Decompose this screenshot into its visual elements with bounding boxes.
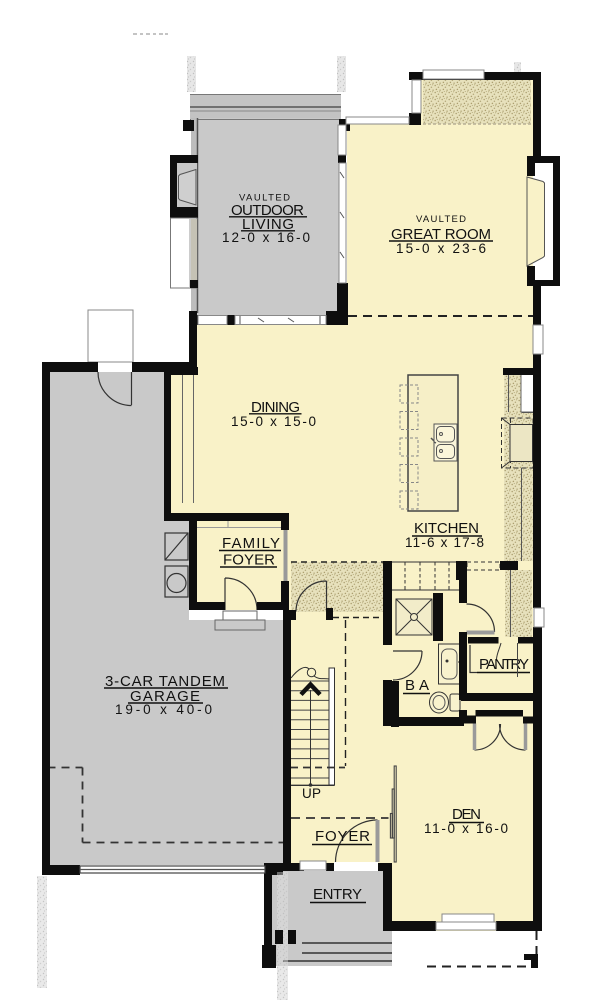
svg-text:FOYER: FOYER bbox=[315, 828, 370, 845]
svg-text:11-6 x 17-8: 11-6 x 17-8 bbox=[405, 535, 484, 550]
svg-text:15-0 x 15-0: 15-0 x 15-0 bbox=[231, 414, 316, 429]
svg-text:15-0 x 23-6: 15-0 x 23-6 bbox=[396, 241, 486, 256]
svg-text:12-0 x 16-0: 12-0 x 16-0 bbox=[222, 230, 310, 245]
svg-text:19-0 x 40-0: 19-0 x 40-0 bbox=[115, 702, 212, 717]
svg-text:UP: UP bbox=[302, 786, 321, 801]
svg-text:11-0 x 16-0: 11-0 x 16-0 bbox=[424, 821, 508, 836]
svg-text:VAULTED: VAULTED bbox=[416, 214, 466, 225]
svg-text:FAMILY: FAMILY bbox=[222, 535, 280, 552]
svg-text:PANTRY: PANTRY bbox=[479, 656, 529, 673]
svg-text:FOYER: FOYER bbox=[223, 552, 275, 569]
svg-text:ENTRY: ENTRY bbox=[313, 886, 362, 903]
